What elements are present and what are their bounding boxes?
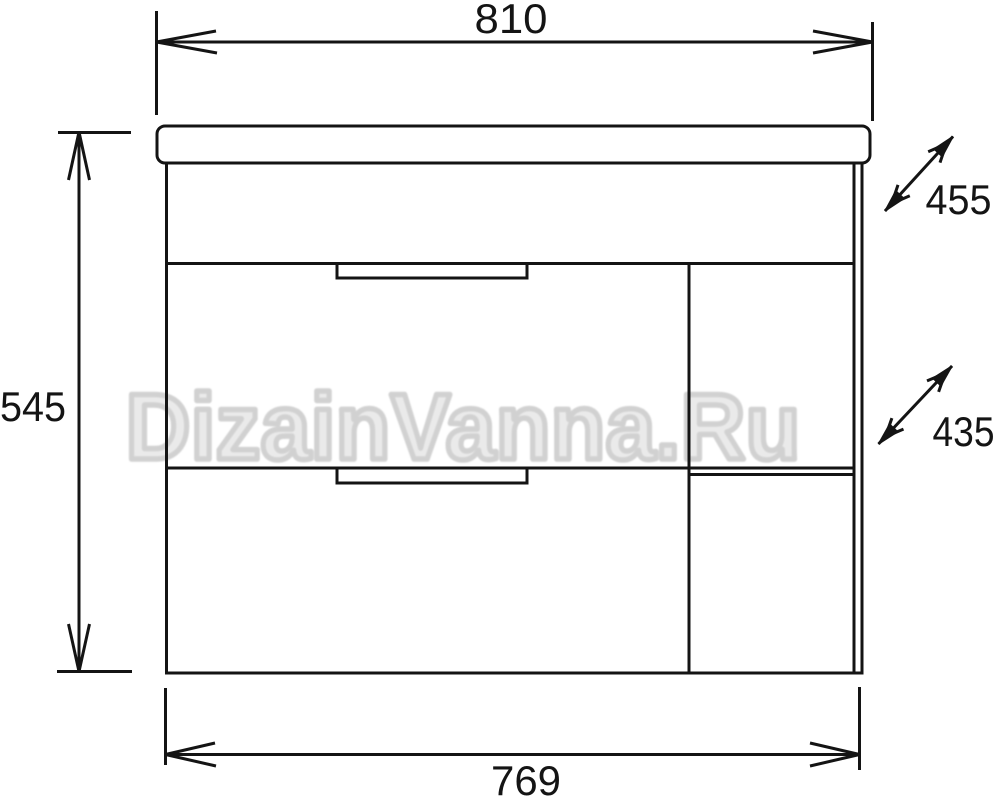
svg-text:455: 455 [926, 176, 992, 223]
svg-text:435: 435 [933, 408, 995, 455]
svg-text:DizainVanna.Ru: DizainVanna.Ru [126, 374, 801, 479]
svg-text:545: 545 [0, 383, 66, 430]
svg-text:810: 810 [475, 0, 548, 42]
svg-text:769: 769 [491, 757, 561, 800]
